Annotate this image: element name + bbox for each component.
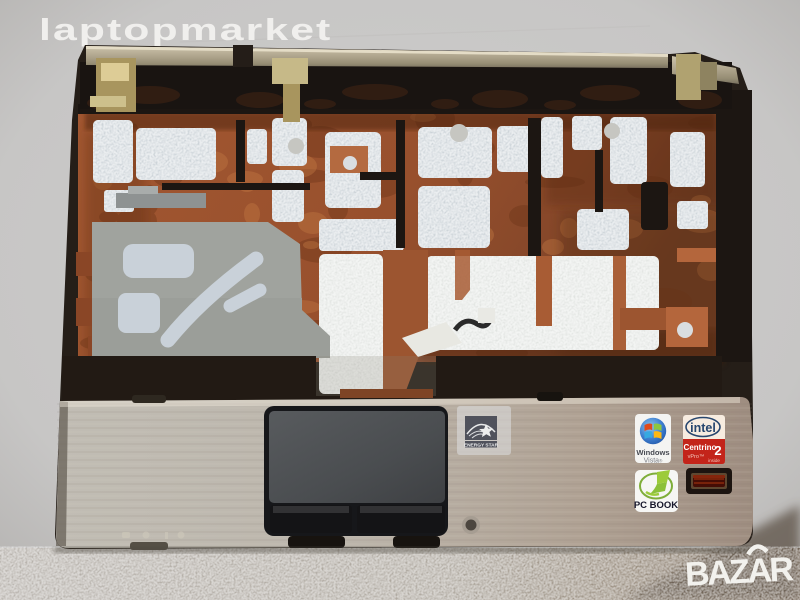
svg-text:Centrino: Centrino [684,443,717,452]
svg-text:PC BOOK: PC BOOK [634,500,678,511]
svg-text:vPro™: vPro™ [688,454,705,460]
svg-text:ENERGY STAR: ENERGY STAR [464,443,499,449]
svg-text:inside: inside [708,458,720,463]
svg-text:Vista®: Vista® [644,458,663,465]
svg-text:intel: intel [690,421,716,435]
svg-text:Windows: Windows [636,448,669,457]
svg-text:laptopmarket: laptopmarket [39,12,332,47]
svg-text:BAZAR: BAZAR [684,550,794,594]
svg-text:2: 2 [714,443,721,458]
